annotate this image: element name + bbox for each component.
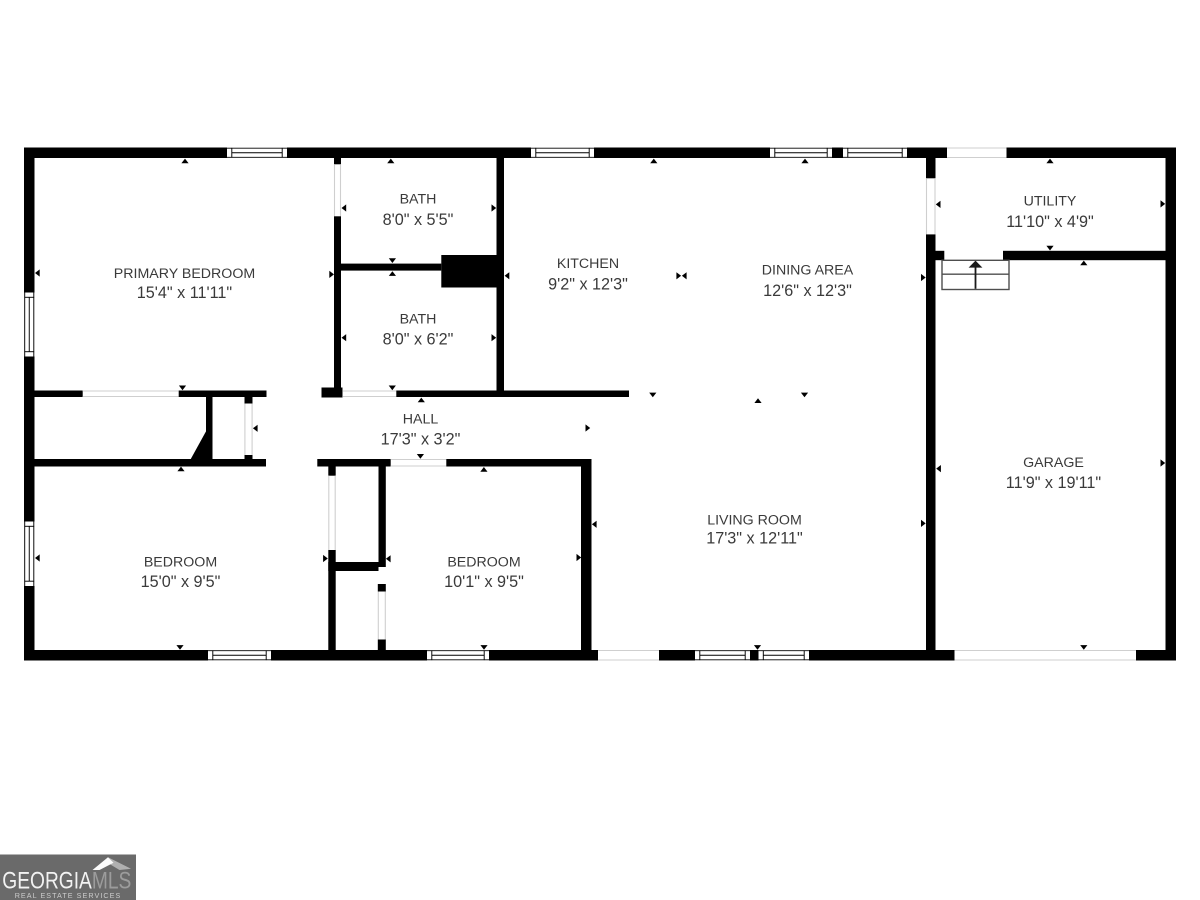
svg-text:UTILITY: UTILITY [1024,194,1077,210]
svg-text:8'0" x 6'2": 8'0" x 6'2" [383,331,454,349]
svg-text:HALL: HALL [403,412,439,428]
svg-text:REAL ESTATE SERVICES: REAL ESTATE SERVICES [15,891,122,900]
svg-text:GARAGE: GARAGE [1023,455,1084,471]
svg-text:17'3" x 12'11": 17'3" x 12'11" [706,529,803,547]
svg-text:17'3" x 3'2": 17'3" x 3'2" [381,430,461,448]
svg-text:BATH: BATH [400,312,437,328]
svg-text:8'0" x 5'5": 8'0" x 5'5" [383,211,454,229]
svg-text:BEDROOM: BEDROOM [447,555,520,571]
svg-text:12'6" x 12'3": 12'6" x 12'3" [763,282,852,300]
svg-text:DINING AREA: DINING AREA [762,263,854,279]
svg-text:11'10" x 4'9": 11'10" x 4'9" [1006,213,1094,231]
svg-text:PRIMARY BEDROOM: PRIMARY BEDROOM [114,266,255,282]
svg-text:BATH: BATH [400,192,437,208]
svg-text:15'4" x 11'11": 15'4" x 11'11" [137,284,233,302]
svg-text:15'0" x 9'5": 15'0" x 9'5" [141,573,221,591]
svg-text:11'9" x 19'11": 11'9" x 19'11" [1006,474,1102,492]
svg-text:BEDROOM: BEDROOM [144,555,217,571]
svg-text:KITCHEN: KITCHEN [557,256,619,272]
svg-text:9'2" x 12'3": 9'2" x 12'3" [548,275,628,293]
svg-text:LIVING ROOM: LIVING ROOM [707,513,802,529]
svg-text:10'1" x 9'5": 10'1" x 9'5" [444,573,524,591]
